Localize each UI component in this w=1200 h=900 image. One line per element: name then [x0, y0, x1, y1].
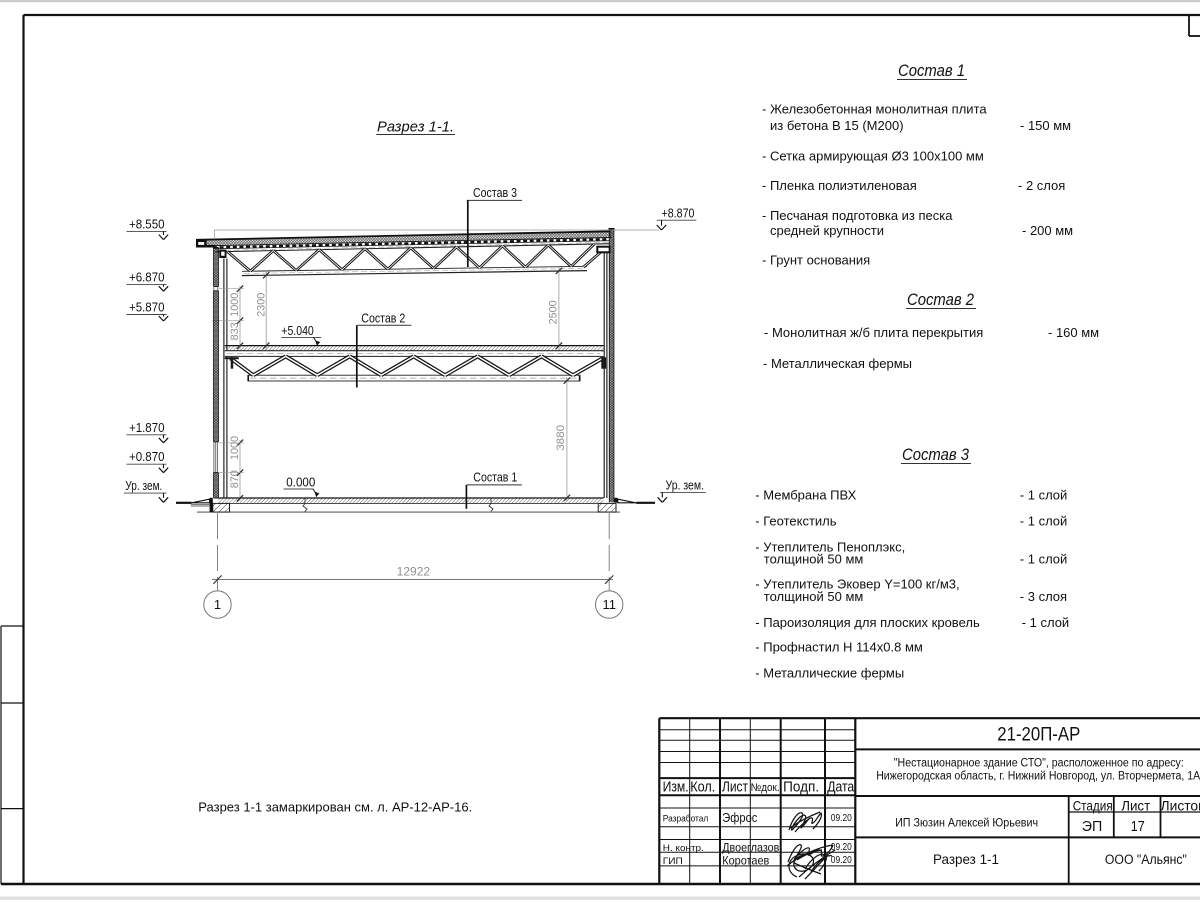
- svg-text:21-20П-АР: 21-20П-АР: [997, 724, 1080, 746]
- svg-text:+5.870: +5.870: [129, 301, 165, 315]
- svg-text:- 1 слой: - 1 слой: [1022, 615, 1070, 630]
- svg-text:12922: 12922: [397, 567, 431, 579]
- svg-text:+8.870: +8.870: [662, 207, 695, 221]
- svg-text:средней крупности: средней крупности: [770, 223, 884, 238]
- svg-text:Нижегородская область, г. Нижн: Нижегородская область, г. Нижний Новгоро…: [876, 771, 1200, 783]
- svg-text:- Геотекстиль: - Геотекстиль: [755, 513, 836, 528]
- svg-text:+5.040: +5.040: [281, 324, 314, 338]
- svg-text:- 160 мм: - 160 мм: [1048, 325, 1099, 340]
- svg-text:+1.870: +1.870: [129, 421, 165, 435]
- svg-text:- Мембрана ПВХ: - Мембрана ПВХ: [755, 487, 856, 502]
- svg-text:- Сетка армирующая Ø3 100х100: - Сетка армирующая Ø3 100х100 мм: [762, 148, 984, 163]
- svg-text:1: 1: [214, 597, 221, 612]
- svg-text:Состав 1: Состав 1: [473, 470, 517, 484]
- svg-text:+6.870: +6.870: [129, 271, 165, 285]
- svg-text:- 1 слой: - 1 слой: [1020, 487, 1068, 502]
- svg-text:0.000: 0.000: [286, 476, 315, 490]
- svg-text:из бетона В 15 (М200): из бетона В 15 (М200): [770, 118, 904, 133]
- svg-text:Лист: Лист: [1121, 797, 1151, 813]
- svg-text:толщиной 50 мм: толщиной 50 мм: [764, 552, 864, 567]
- svg-text:Состав 1: Состав 1: [898, 61, 965, 80]
- svg-text:Коротаев: Коротаев: [722, 854, 769, 868]
- svg-text:3880: 3880: [555, 425, 567, 451]
- svg-text:толщиной 50 мм: толщиной 50 мм: [764, 589, 864, 604]
- svg-text:Состав 3: Состав 3: [902, 445, 969, 464]
- svg-text:- Пароизоляция для плоских кро: - Пароизоляция для плоских кровель: [755, 615, 980, 630]
- svg-text:+8.550: +8.550: [129, 217, 165, 231]
- svg-text:Двоеглазов: Двоеглазов: [722, 841, 779, 855]
- svg-text:- Железобетонная монолитная п: - Железобетонная монолитная плита: [762, 102, 987, 117]
- svg-text:Состав 2: Состав 2: [907, 290, 974, 309]
- svg-text:Дата: Дата: [827, 778, 855, 795]
- svg-text:- 3 слоя: - 3 слоя: [1020, 589, 1067, 604]
- svg-text:833: 833: [229, 322, 241, 340]
- svg-text:1000: 1000: [229, 436, 241, 460]
- svg-text:- Профнастил Н 114х0.8 мм: - Профнастил Н 114х0.8 мм: [755, 640, 923, 655]
- svg-text:- Песчаная подготовка из песка: - Песчаная подготовка из песка: [762, 208, 953, 223]
- svg-text:ИП Зюзин Алексей Юрьевич: ИП Зюзин Алексей Юрьевич: [895, 815, 1038, 829]
- svg-text:11: 11: [602, 597, 616, 612]
- svg-text:Подп.: Подп.: [783, 778, 819, 795]
- svg-text:- Монолитная ж/б плита перекры: - Монолитная ж/б плита перекрытия: [764, 325, 983, 340]
- svg-text:09.20: 09.20: [831, 812, 852, 824]
- svg-text:- Металлическая фермы: - Металлическая фермы: [763, 356, 912, 371]
- svg-text:- 200 мм: - 200 мм: [1022, 223, 1073, 238]
- svg-text:870: 870: [229, 470, 241, 488]
- svg-text:- Металлические фермы: - Металлические фермы: [755, 666, 904, 681]
- svg-text:Состав 2: Состав 2: [361, 312, 405, 326]
- svg-text:- 1 слой: - 1 слой: [1020, 513, 1068, 528]
- svg-text:Лист: Лист: [722, 778, 748, 795]
- svg-text:Разрез 1-1 замаркирован см. л.: Разрез 1-1 замаркирован см. л. АР-12-АР-…: [198, 800, 472, 815]
- svg-text:- Пленка полиэтиленовая: - Пленка полиэтиленовая: [762, 178, 917, 193]
- svg-text:Ур. зем.: Ур. зем.: [125, 479, 162, 493]
- svg-text:Изм.: Изм.: [663, 778, 689, 795]
- svg-text:Эфрос: Эфрос: [722, 810, 757, 825]
- svg-text:- 150 мм: - 150 мм: [1020, 118, 1071, 133]
- svg-text:№док.: №док.: [751, 782, 780, 794]
- svg-text:- 1 слой: - 1 слой: [1020, 552, 1068, 567]
- svg-text:Н. контр.: Н. контр.: [663, 843, 704, 854]
- svg-text:ГИП: ГИП: [663, 856, 683, 867]
- svg-text:"Нестационарное здание СТО", р: "Нестационарное здание СТО", расположенн…: [894, 757, 1184, 769]
- svg-text:Разработал: Разработал: [663, 814, 709, 825]
- svg-text:Разрез 1-1.: Разрез 1-1.: [377, 118, 454, 135]
- svg-text:Состав 3: Состав 3: [473, 186, 517, 200]
- svg-text:17: 17: [1131, 818, 1145, 835]
- svg-text:Стадия: Стадия: [1073, 797, 1113, 813]
- svg-text:09.20: 09.20: [831, 854, 852, 866]
- svg-text:1000: 1000: [229, 293, 241, 317]
- svg-text:Ур. зем.: Ур. зем.: [666, 479, 705, 493]
- svg-text:Кол.: Кол.: [690, 778, 715, 795]
- svg-text:+0.870: +0.870: [129, 450, 165, 464]
- svg-text:2500: 2500: [547, 300, 559, 324]
- svg-text:Разрез 1-1: Разрез 1-1: [933, 851, 999, 867]
- svg-text:- 2 слоя: - 2 слоя: [1018, 178, 1065, 193]
- svg-text:2300: 2300: [255, 293, 267, 317]
- svg-text:Листов: Листов: [1161, 797, 1200, 813]
- svg-text:- Грунт основания: - Грунт основания: [762, 253, 870, 268]
- svg-text:ООО "Альянс": ООО "Альянс": [1105, 852, 1187, 867]
- svg-text:ЭП: ЭП: [1082, 818, 1103, 835]
